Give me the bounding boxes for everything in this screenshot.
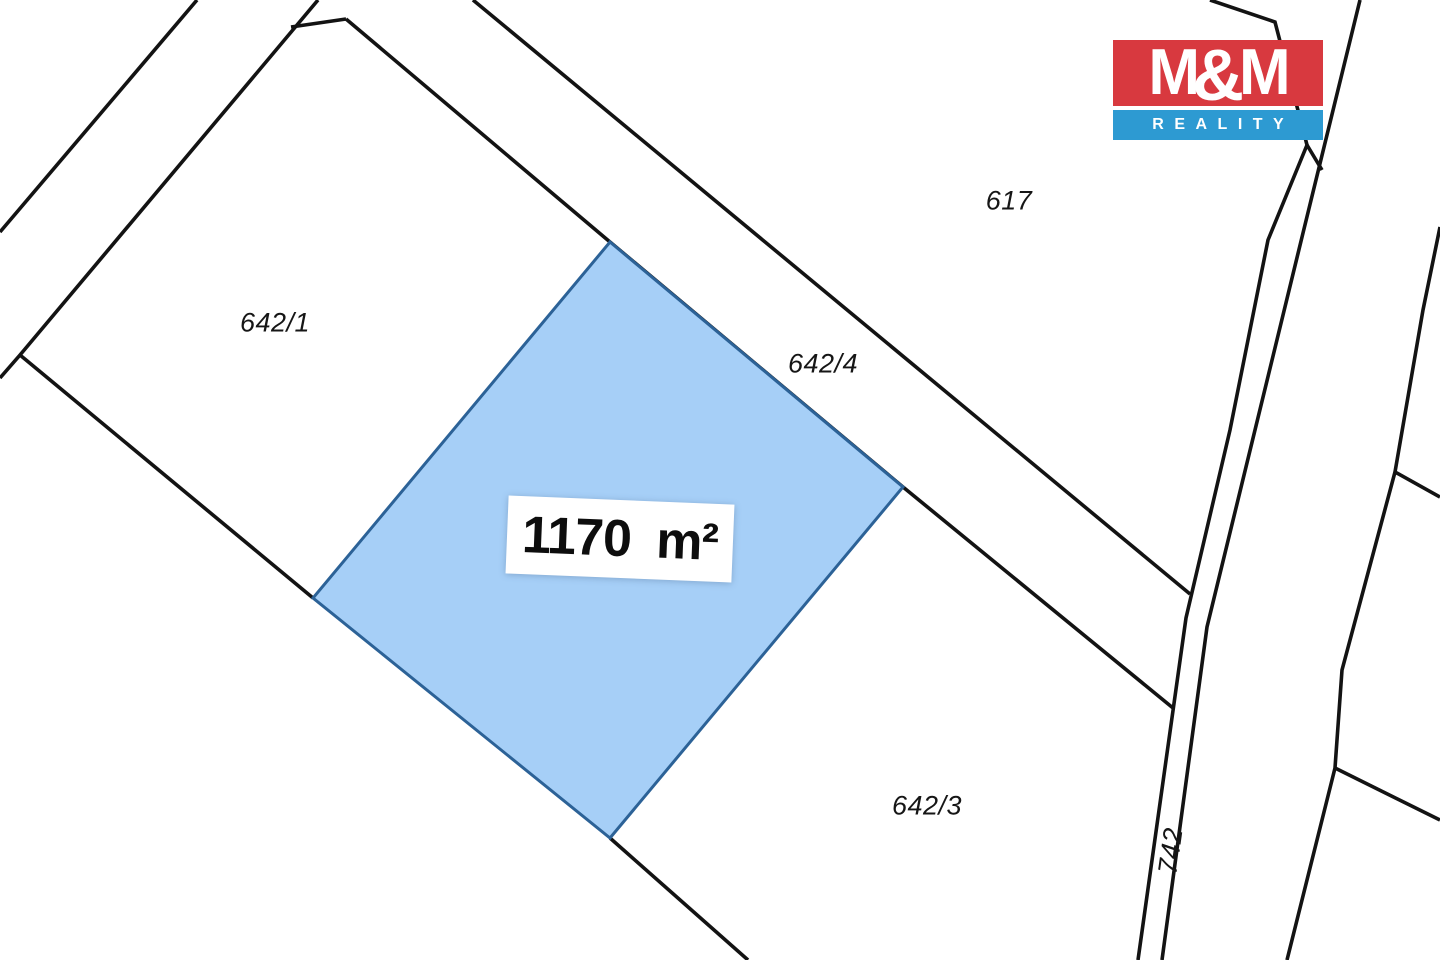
mm-logo-mark: M & M (1113, 40, 1323, 106)
area-value: 1170 m² (521, 505, 719, 573)
boundary-parcel-642-3-west-boundary (610, 838, 748, 960)
parcel-label-642-1: 642/1 (240, 308, 310, 339)
parcel-label-617: 617 (986, 186, 1033, 217)
mm-reality-logo: M & M REALITY (1113, 40, 1323, 140)
parcel-label-642-4: 642/4 (788, 349, 858, 380)
boundary-upper-left-road-line (0, 0, 197, 232)
boundary-road-742-east-line (1162, 0, 1360, 960)
parcel-label-642-3: 642/3 (892, 791, 962, 822)
boundary-east-branch-lower (1335, 768, 1440, 820)
logo-letter-m-right: M (1239, 40, 1288, 105)
boundary-east-branch-upper (1395, 472, 1440, 497)
logo-subtitle: REALITY (1142, 117, 1294, 133)
boundary-road-742-west-line (1138, 0, 1307, 960)
boundary-parcel-642-1-south-boundary (20, 355, 313, 598)
logo-ampersand: & (1192, 40, 1244, 106)
highlighted-parcel-area-badge: 1170 m² (506, 495, 735, 582)
parcel-boundaries-layer (0, 0, 1440, 960)
cadastral-map: 1170 m² M & M REALITY 642/1642/4617642/3… (0, 0, 1440, 960)
logo-reality-bar: REALITY (1113, 110, 1323, 140)
boundary-east-parcel-boundary (1287, 227, 1440, 960)
parcel-label-742: 742 (1152, 826, 1189, 876)
logo-letter-m-left: M (1148, 40, 1197, 105)
